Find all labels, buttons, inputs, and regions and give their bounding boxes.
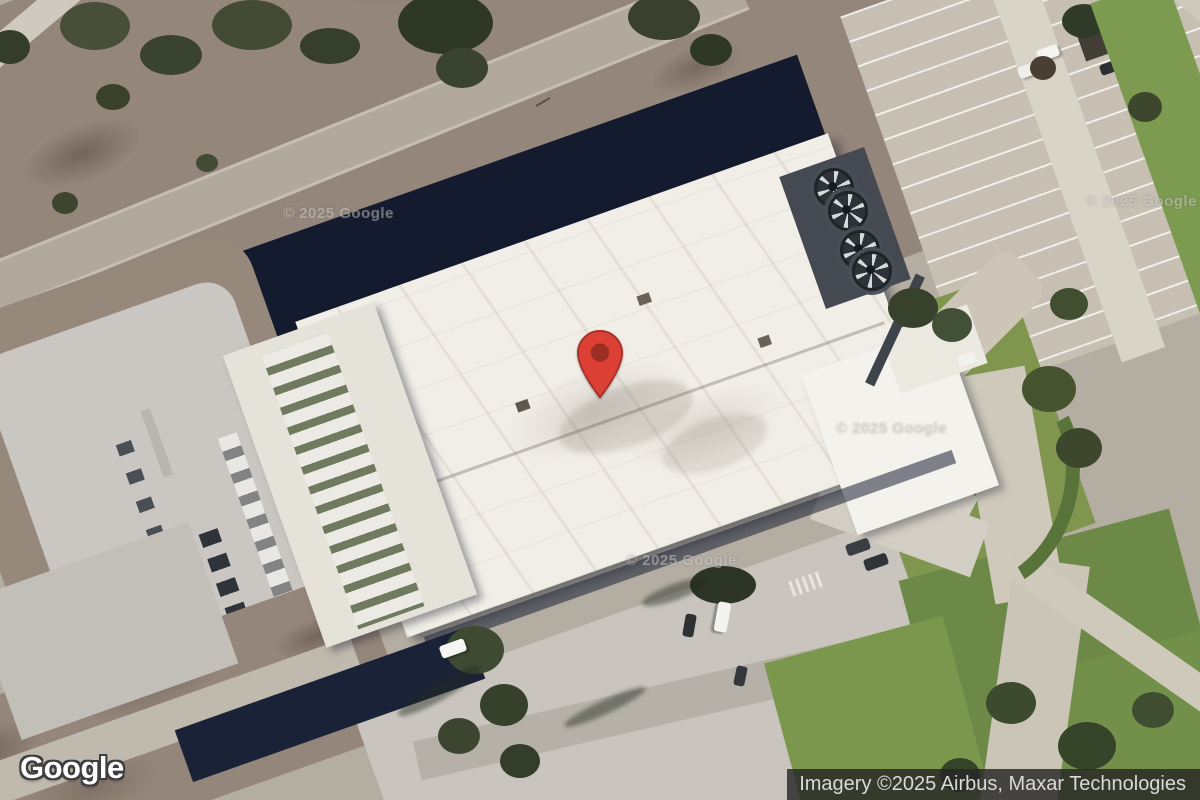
- roof-hatch: [515, 399, 531, 413]
- tree: [1030, 56, 1056, 80]
- map-pin-body[interactable]: [578, 331, 622, 397]
- tree: [438, 718, 480, 754]
- tree: [60, 2, 130, 50]
- imagery-watermark: © 2025 Google: [626, 552, 737, 569]
- fan-hub-icon: [842, 205, 851, 214]
- tree: [140, 35, 202, 75]
- tree: [196, 154, 218, 172]
- fan-hub-icon: [828, 182, 837, 191]
- tree: [96, 84, 130, 110]
- tree: [888, 288, 938, 328]
- imagery-watermark: © 2025 Google: [1086, 193, 1197, 210]
- tree: [1132, 692, 1174, 728]
- tree: [52, 192, 78, 214]
- tree: [1050, 288, 1088, 320]
- tree: [1128, 92, 1162, 122]
- fan-hub-icon: [866, 265, 875, 274]
- attribution-text: Imagery ©2025 Airbus, Maxar Technologies: [799, 773, 1186, 795]
- imagery-watermark: © 2025 Google: [836, 420, 947, 437]
- map-canvas[interactable]: © 2025 Google © 2025 Google © 2025 Googl…: [0, 0, 1200, 800]
- cooling-fan: [852, 251, 892, 291]
- tree: [212, 0, 292, 50]
- google-logo[interactable]: Google: [20, 750, 124, 786]
- tree: [986, 682, 1036, 724]
- tree: [932, 308, 972, 342]
- fan-hub-icon: [854, 244, 863, 253]
- map-pin-dot: [591, 343, 609, 361]
- map-pin[interactable]: [577, 328, 623, 401]
- roof-hatch: [636, 292, 652, 306]
- tree: [436, 48, 488, 88]
- tree: [1056, 428, 1102, 468]
- tree: [480, 684, 528, 726]
- cooling-fan: [828, 191, 868, 231]
- tree: [1058, 722, 1116, 770]
- tree: [690, 34, 732, 66]
- tree: [300, 28, 360, 64]
- roof-hatch: [757, 335, 772, 348]
- attribution-bar: Imagery ©2025 Airbus, Maxar Technologies: [787, 769, 1200, 800]
- tree: [500, 744, 540, 778]
- tree: [1022, 366, 1076, 412]
- imagery-watermark: © 2025 Google: [283, 205, 394, 222]
